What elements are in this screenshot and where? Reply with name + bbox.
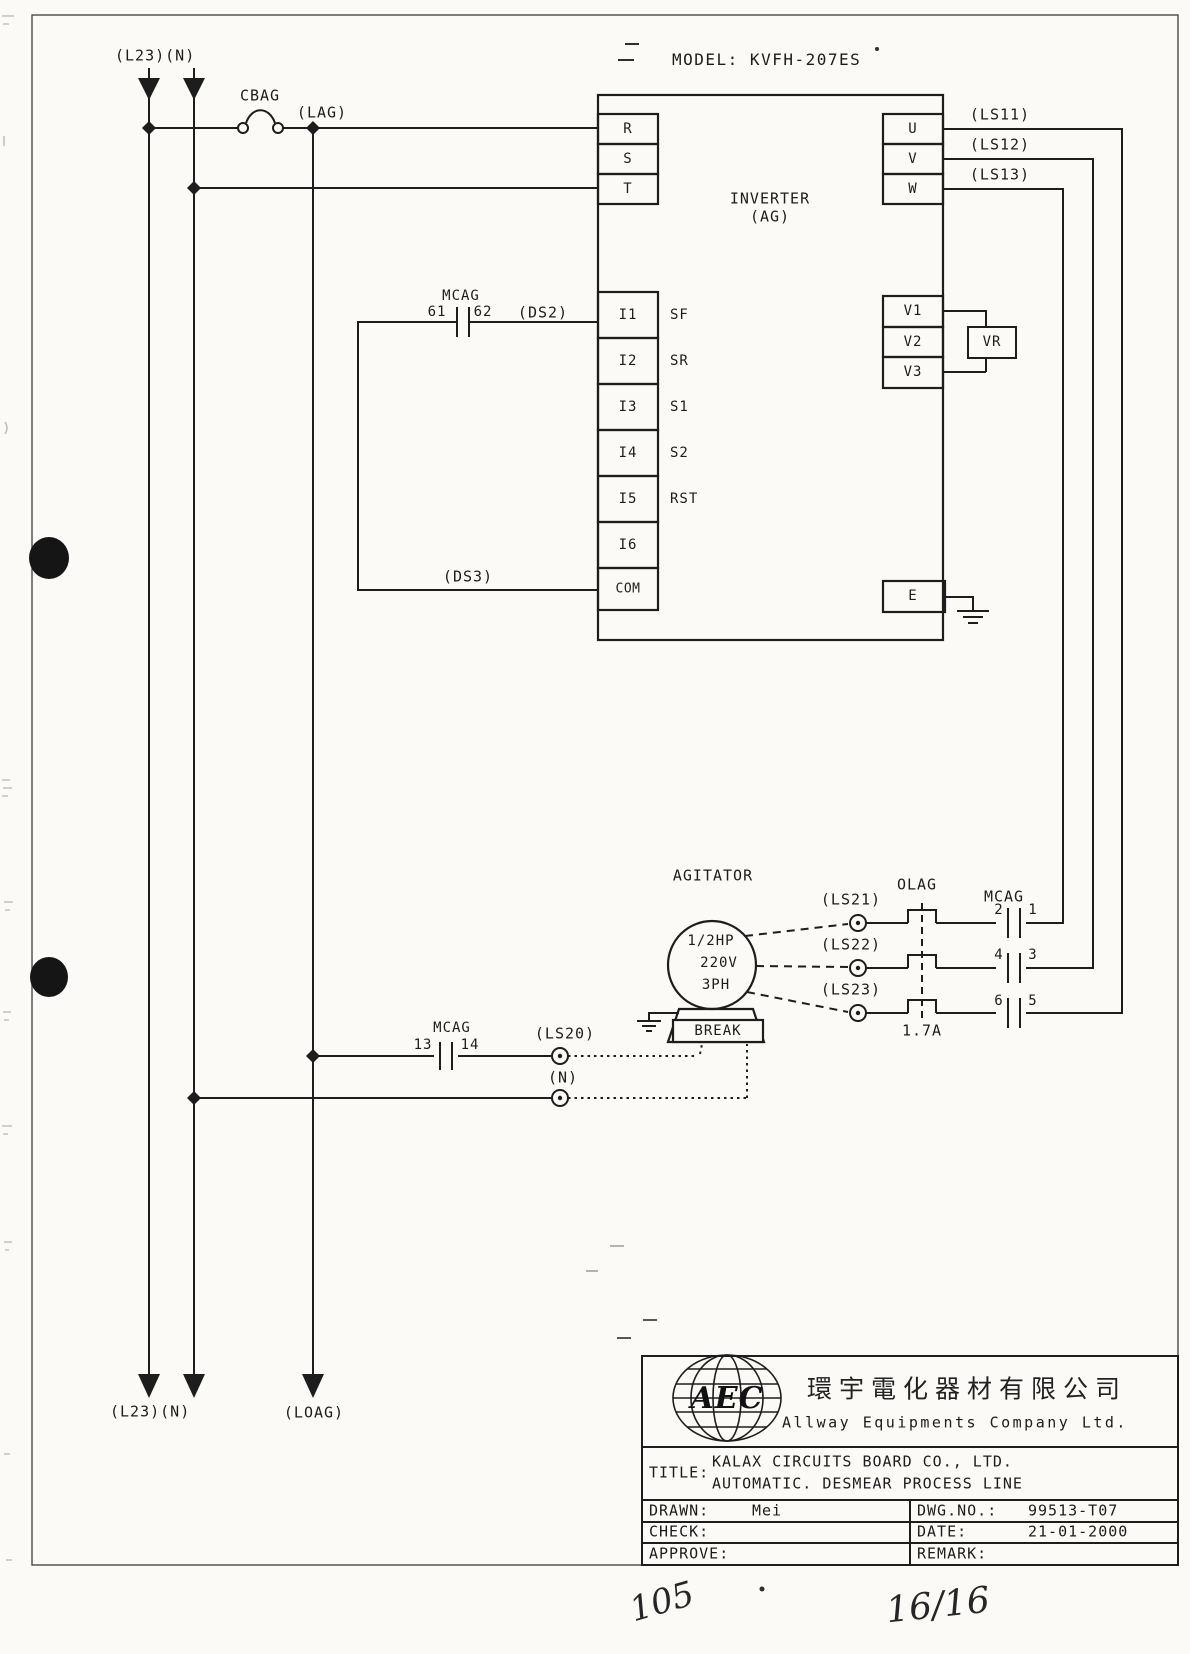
binder-hole	[29, 537, 69, 579]
check-label: CHECK:	[649, 1525, 709, 1540]
brake-label: BREAK	[694, 1024, 741, 1038]
contact-rows	[850, 903, 1020, 1028]
wire-junctions	[142, 121, 320, 1105]
schematic-sheet: (L23)(N) CBAG (LAG) MODEL: KVFH-207ES IN…	[0, 0, 1190, 1654]
aux-contact-13: 13	[414, 1038, 433, 1052]
ls23-label: (LS23)	[821, 983, 881, 998]
ds2-label: (DS2)	[518, 306, 568, 321]
contact-4: 4	[994, 948, 1003, 962]
vr-label: VR	[983, 335, 1002, 349]
vr-circuit	[943, 311, 1016, 372]
inverter-box	[598, 95, 945, 640]
lag-label: (LAG)	[297, 106, 347, 121]
feed-wires	[149, 68, 598, 1396]
stray-dots	[760, 47, 880, 1592]
binder-holes	[29, 537, 69, 997]
company-name-cn: 環宇電化器材有限公司	[807, 1377, 1127, 1402]
ls22-label: (LS22)	[821, 938, 881, 953]
wire-ls11-label: (LS11)	[970, 108, 1030, 123]
date-label: DATE:	[917, 1525, 967, 1540]
inverter-name-sub: (AG)	[750, 210, 790, 225]
ds-branch-wires	[358, 307, 598, 590]
inverter-name: INVERTER	[730, 192, 810, 207]
signal-sf: SF	[670, 308, 689, 322]
mcag-label: MCAG	[984, 890, 1024, 905]
ds-contact-62: 62	[474, 305, 493, 319]
wire-ls12-label: (LS12)	[970, 138, 1030, 153]
company-logo-text: AEC	[690, 1384, 763, 1414]
signal-s1: S1	[670, 400, 689, 414]
drawn-label: DRAWN:	[649, 1504, 709, 1519]
terminal-t: T	[623, 182, 632, 196]
terminal-i5: I5	[619, 492, 638, 506]
terminal-v3: V3	[904, 365, 923, 379]
overload-rating: 1.7A	[902, 1024, 942, 1039]
terminal-i2: I2	[619, 354, 638, 368]
olag-label: OLAG	[897, 878, 937, 893]
remark-label: REMARK:	[917, 1547, 987, 1562]
motor-hp: 1/2HP	[687, 934, 734, 948]
aux-mcag-label: MCAG	[433, 1021, 471, 1035]
earth-ground	[945, 597, 989, 623]
terminal-i4: I4	[619, 446, 638, 460]
terminal-v: V	[908, 152, 917, 166]
binder-hole	[30, 957, 68, 997]
terminal-v2: V2	[904, 335, 923, 349]
bottom-load-label: (LOAG)	[284, 1406, 344, 1421]
ds-mcag-label: MCAG	[442, 289, 480, 303]
terminal-e: E	[908, 589, 917, 603]
aux-contact-14: 14	[461, 1038, 480, 1052]
terminal-v1: V1	[904, 304, 923, 318]
company-name-en: Allway Equipments Company Ltd.	[782, 1416, 1128, 1431]
fuse-label: CBAG	[240, 89, 280, 104]
output-wires	[943, 129, 1122, 1013]
aux-n-label: (N)	[548, 1071, 578, 1086]
terminal-r: R	[623, 122, 632, 136]
ls20-label: (LS20)	[535, 1027, 595, 1042]
feed-arrows	[138, 78, 324, 1398]
date-value: 21-01-2000	[1028, 1525, 1128, 1540]
contact-1: 1	[1028, 903, 1037, 917]
ls21-label: (LS21)	[821, 893, 881, 908]
approve-label: APPROVE:	[649, 1547, 729, 1562]
terminal-com: COM	[616, 583, 641, 596]
aux-terminals	[552, 1044, 747, 1106]
scan-artifacts	[2, 16, 14, 1560]
signal-s2: S2	[670, 446, 689, 460]
motor-phase: 3PH	[702, 978, 730, 992]
title-line1: KALAX CIRCUITS BOARD CO., LTD.	[712, 1455, 1013, 1470]
title-line2: AUTOMATIC. DESMEAR PROCESS LINE	[712, 1477, 1023, 1492]
terminal-s: S	[623, 152, 632, 166]
dwg-no-label: DWG.NO.:	[917, 1504, 997, 1519]
signal-sr: SR	[670, 354, 689, 368]
contact-3: 3	[1028, 948, 1037, 962]
stray-marks	[586, 44, 657, 1338]
model-label: MODEL: KVFH-207ES	[672, 52, 861, 68]
top-feed-label: (L23)(N)	[115, 49, 195, 64]
contact-6: 6	[994, 994, 1003, 1008]
wire-ls13-label: (LS13)	[970, 168, 1030, 183]
title-label: TITLE:	[649, 1466, 709, 1481]
dwg-no-value: 99513-T07	[1028, 1504, 1118, 1519]
page-border	[32, 15, 1178, 1565]
agitator-title: AGITATOR	[673, 869, 753, 884]
terminal-i3: I3	[619, 400, 638, 414]
terminal-w: W	[908, 182, 917, 196]
terminal-i1: I1	[619, 308, 638, 322]
terminal-u: U	[908, 122, 917, 136]
agitator-motor	[637, 921, 848, 1042]
motor-volt: 220V	[700, 956, 738, 970]
contact-5: 5	[1028, 994, 1037, 1008]
ds3-label: (DS3)	[443, 570, 493, 585]
signal-rst: RST	[670, 492, 698, 506]
drawn-value: Mei	[752, 1504, 782, 1519]
ds-contact-61: 61	[428, 305, 447, 319]
terminal-i6: I6	[619, 538, 638, 552]
bottom-feed-label: (L23)(N)	[110, 1405, 190, 1420]
contact-2: 2	[994, 903, 1003, 917]
